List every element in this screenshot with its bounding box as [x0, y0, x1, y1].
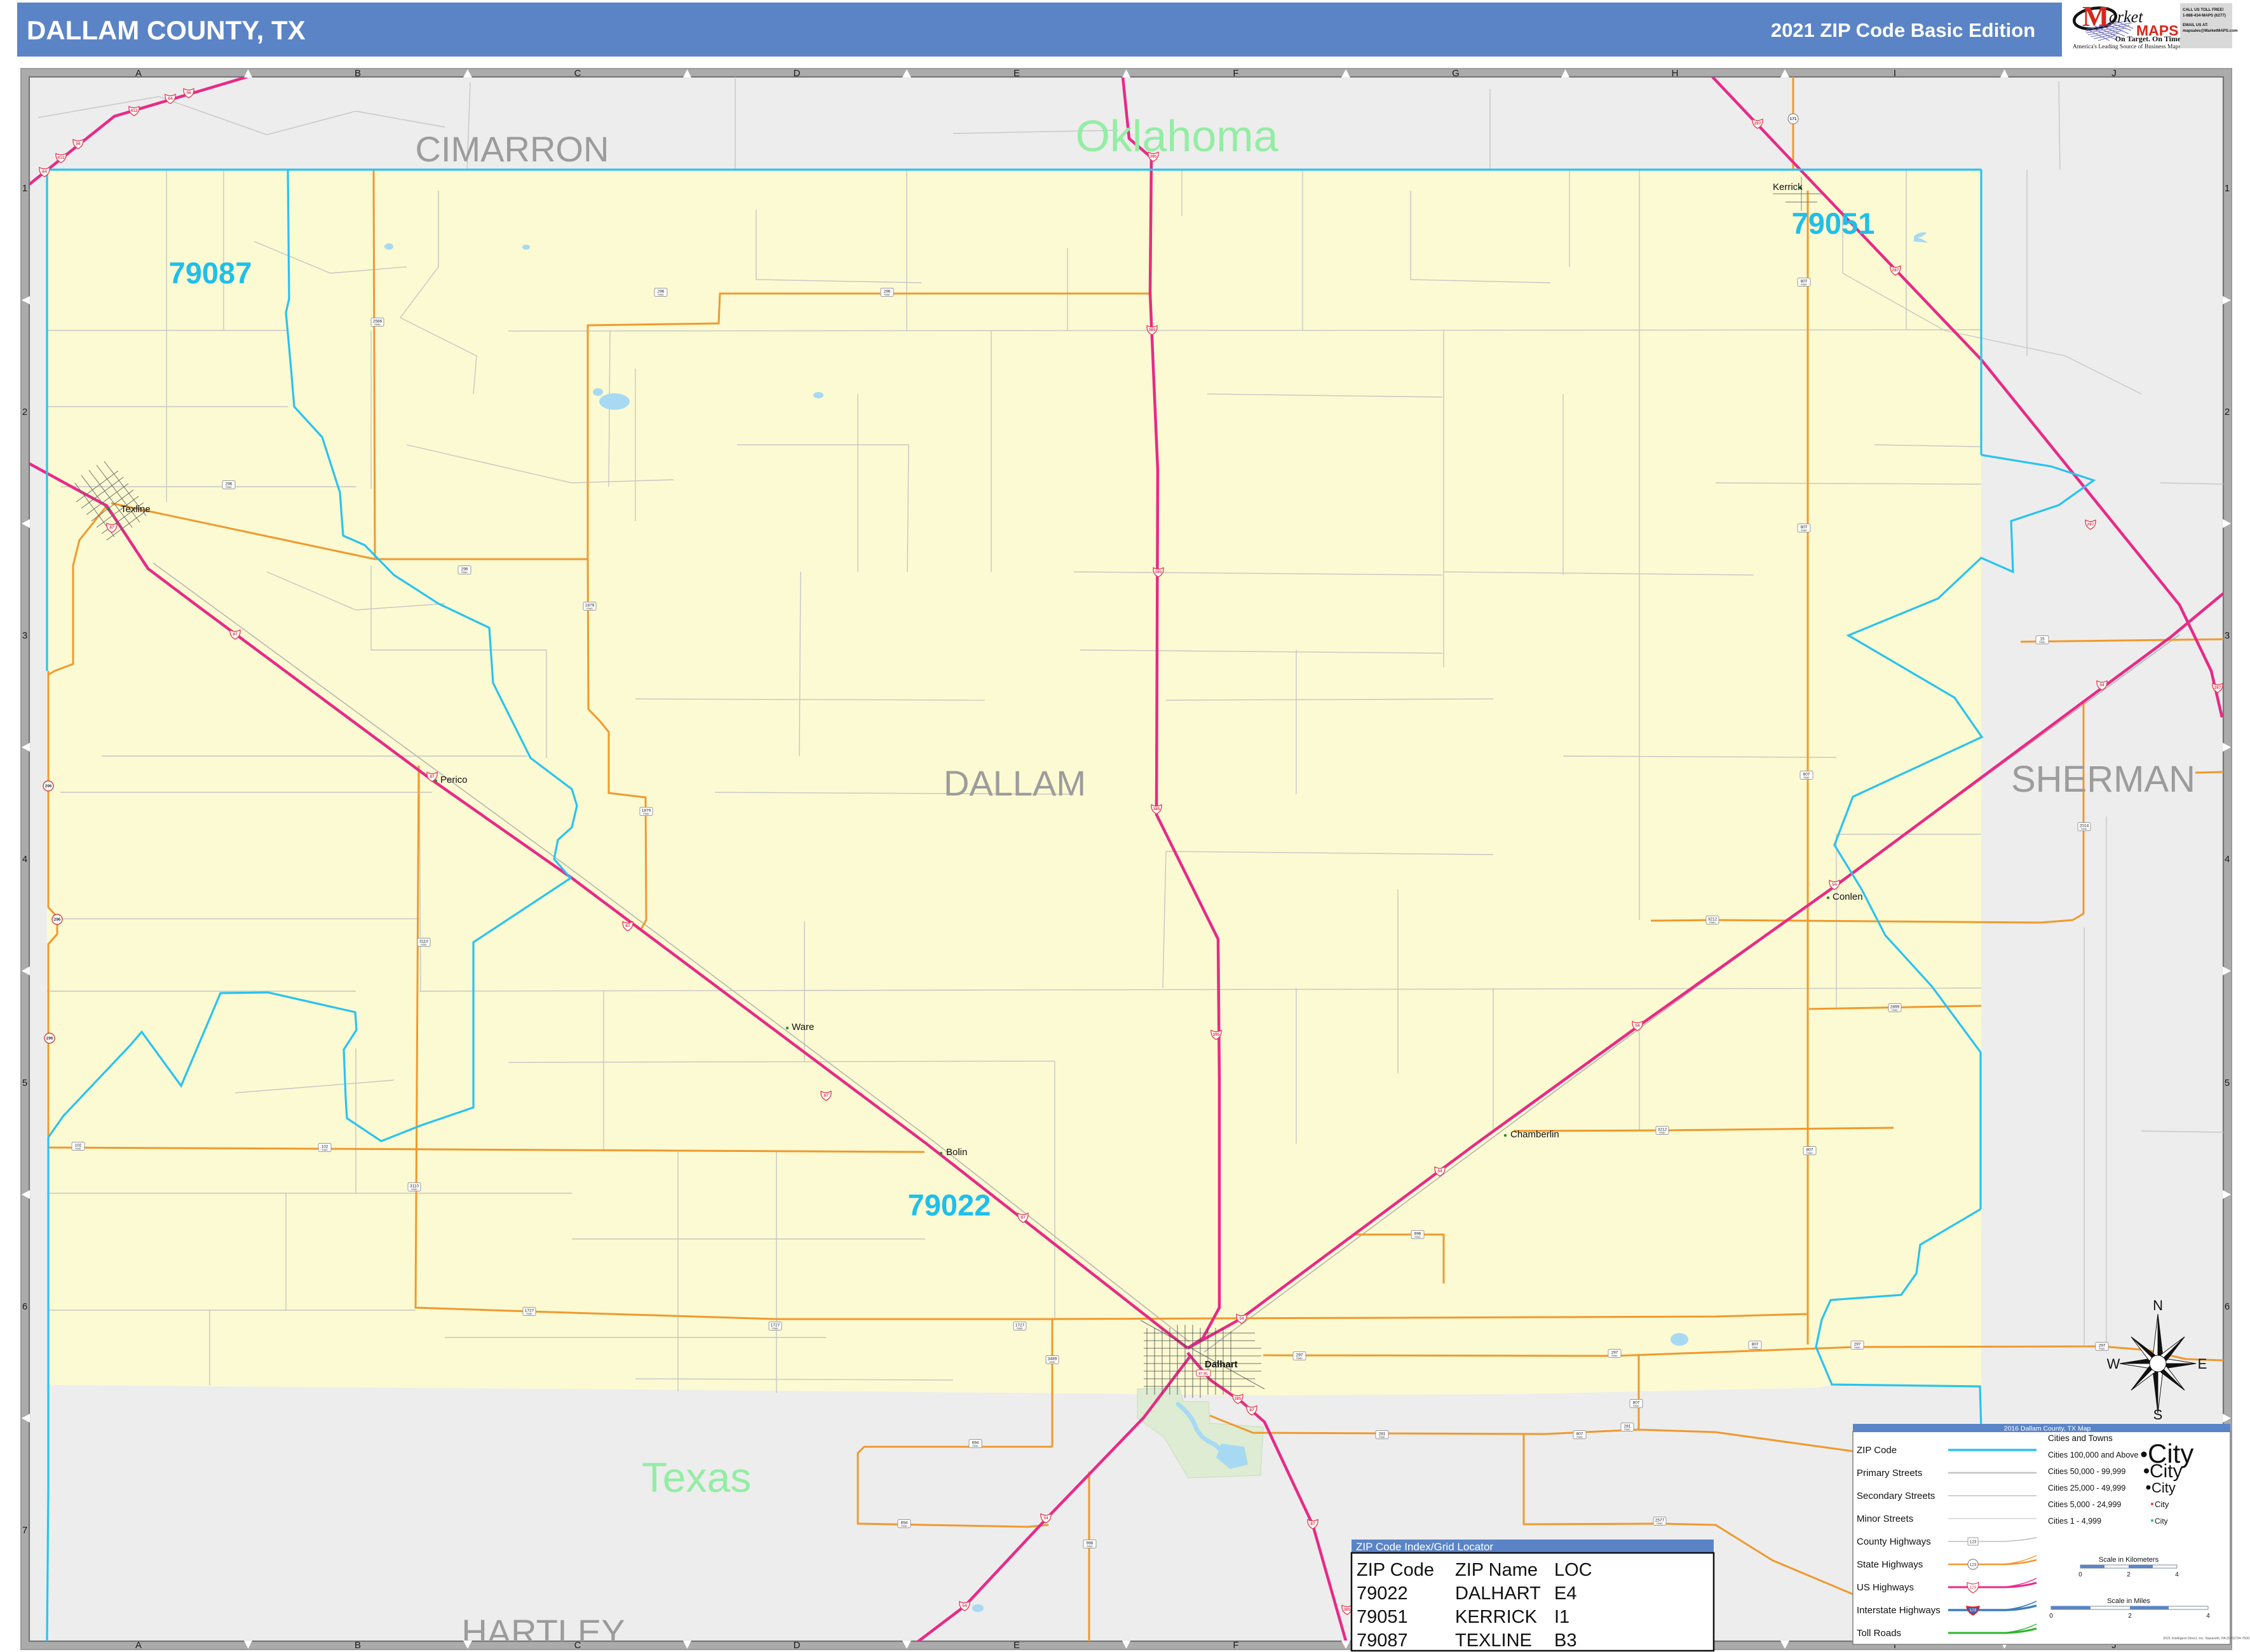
svg-text:ROAD: ROAD — [461, 571, 468, 574]
svg-text:ZIP Code: ZIP Code — [1357, 1560, 1434, 1580]
svg-text:87: 87 — [109, 525, 114, 530]
svg-text:2: 2 — [2128, 1613, 2132, 1620]
svg-text:2021 Intelligent Direct, Inc.: 2021 Intelligent Direct, Inc. Nazareth, … — [2163, 1637, 2249, 1641]
svg-text:54: 54 — [962, 1604, 967, 1608]
svg-text:US Highways: US Highways — [1857, 1582, 1914, 1593]
svg-text:87: 87 — [1310, 1522, 1315, 1526]
svg-text:DALLAM: DALLAM — [944, 763, 1086, 803]
svg-text:C: C — [574, 1640, 581, 1651]
svg-text:5: 5 — [22, 1078, 27, 1088]
svg-text:79087: 79087 — [169, 256, 252, 290]
svg-text:Chamberlin: Chamberlin — [1510, 1129, 1559, 1140]
svg-text:County Highways: County Highways — [1857, 1536, 1931, 1547]
svg-text:296: 296 — [54, 917, 61, 922]
svg-text:287: 287 — [1754, 121, 1761, 126]
svg-text:56: 56 — [76, 142, 81, 146]
svg-text:City: City — [2155, 1517, 2168, 1526]
svg-text:ROAD: ROAD — [1801, 283, 1807, 286]
svg-text:ROAD: ROAD — [972, 1445, 979, 1447]
svg-text:D: D — [794, 1640, 801, 1651]
svg-text:E: E — [1013, 1640, 1020, 1651]
svg-text:ROAD: ROAD — [411, 1188, 417, 1191]
svg-text:ROAD: ROAD — [1049, 1361, 1055, 1364]
svg-text:412: 412 — [57, 156, 65, 160]
svg-text:ROAD: ROAD — [884, 294, 890, 296]
svg-text:DALHART: DALHART — [1455, 1583, 1541, 1604]
svg-text:A: A — [135, 68, 142, 79]
svg-text:385: 385 — [1149, 154, 1157, 159]
svg-text:Bolin: Bolin — [946, 1147, 967, 1158]
svg-text:B: B — [355, 1640, 361, 1651]
svg-text:385: 385 — [1343, 1608, 1351, 1612]
svg-text:City: City — [2150, 1461, 2183, 1482]
svg-text:E4: E4 — [1554, 1583, 1576, 1604]
svg-text:B3: B3 — [1554, 1630, 1576, 1651]
svg-text:C: C — [574, 68, 581, 79]
svg-text:2: 2 — [2225, 407, 2230, 417]
svg-text:7: 7 — [22, 1525, 27, 1536]
svg-text:Scale in Kilometers: Scale in Kilometers — [2099, 1556, 2159, 1564]
svg-text:ROAD: ROAD — [1801, 529, 1807, 532]
svg-text:287: 287 — [2214, 686, 2221, 690]
svg-text:2: 2 — [2127, 1571, 2131, 1578]
svg-text:0: 0 — [2078, 1571, 2082, 1578]
svg-text:ROAD: ROAD — [1854, 1346, 1860, 1349]
svg-text:E: E — [2198, 1356, 2207, 1372]
svg-text:F: F — [1233, 1640, 1238, 1651]
svg-text:123: 123 — [1970, 1540, 1977, 1545]
svg-text:America's Leading Source of B: America's Leading Source of Business Map… — [2073, 43, 2181, 50]
svg-text:DALLAM COUNTY, TX: DALLAM COUNTY, TX — [27, 15, 306, 45]
svg-text:ROAD: ROAD — [1657, 1522, 1663, 1525]
svg-text:Conlen: Conlen — [1833, 891, 1863, 902]
svg-text:296: 296 — [45, 784, 52, 789]
svg-text:4: 4 — [2175, 1571, 2179, 1578]
svg-text:ROAD: ROAD — [643, 813, 649, 815]
svg-text:ROAD: ROAD — [526, 1313, 532, 1315]
svg-text:Cities 25,000 - 49,999: Cities 25,000 - 49,999 — [2048, 1484, 2125, 1493]
svg-text:54: 54 — [1043, 1516, 1048, 1520]
svg-text:2: 2 — [22, 407, 27, 417]
svg-text:385: 385 — [1153, 807, 1160, 811]
svg-text:J: J — [2111, 68, 2117, 79]
svg-text:79022: 79022 — [1357, 1583, 1408, 1604]
svg-text:N: N — [2153, 1297, 2163, 1313]
svg-text:ROAD: ROAD — [75, 1148, 81, 1150]
svg-text:Toll Roads: Toll Roads — [1857, 1628, 1901, 1639]
svg-text:ROAD: ROAD — [1752, 1346, 1758, 1349]
svg-text:Primary Streets: Primary Streets — [1857, 1468, 1922, 1479]
svg-text:SHERMAN: SHERMAN — [2011, 759, 2195, 800]
svg-text:ROAD: ROAD — [772, 1327, 778, 1330]
svg-text:54: 54 — [1635, 1024, 1640, 1028]
svg-text:ROAD: ROAD — [1414, 1236, 1421, 1238]
svg-text:mapsales@MarketMAPS.com: mapsales@MarketMAPS.com — [2183, 29, 2238, 33]
svg-text:Cities 5,000 - 24,999: Cities 5,000 - 24,999 — [2048, 1500, 2121, 1509]
svg-text:Interstate Highways: Interstate Highways — [1857, 1605, 1941, 1616]
svg-text:Texas: Texas — [642, 1454, 751, 1501]
svg-text:City: City — [2155, 1500, 2169, 1509]
svg-text:1-888-434-MAPS (6277): 1-888-434-MAPS (6277) — [2183, 13, 2226, 18]
svg-text:B: B — [355, 68, 361, 79]
svg-text:W: W — [2107, 1356, 2120, 1372]
svg-text:ROAD: ROAD — [1379, 1436, 1385, 1439]
svg-text:Cities 100,000 and Above: Cities 100,000 and Above — [2048, 1451, 2139, 1459]
svg-text:D: D — [794, 68, 801, 79]
svg-text:287: 287 — [2087, 522, 2094, 527]
svg-text:1: 1 — [2225, 183, 2230, 194]
svg-text:I: I — [1894, 68, 1896, 79]
svg-text:ROAD: ROAD — [901, 1525, 907, 1527]
svg-text:ROAD: ROAD — [1806, 1152, 1813, 1154]
svg-text:Oklahoma: Oklahoma — [1075, 111, 1278, 161]
svg-text:E: E — [1013, 68, 1020, 79]
svg-text:Cities 50,000 - 99,999: Cities 50,000 - 99,999 — [2048, 1467, 2125, 1476]
svg-text:5: 5 — [2225, 1078, 2230, 1088]
svg-text:ROAD: ROAD — [374, 323, 381, 326]
svg-text:6: 6 — [2225, 1301, 2230, 1312]
svg-text:412: 412 — [130, 109, 138, 113]
svg-text:State Highways: State Highways — [1857, 1559, 1923, 1570]
svg-text:ROAD: ROAD — [1709, 921, 1716, 924]
svg-text:56: 56 — [186, 91, 191, 95]
svg-text:2021 ZIP Code Basic Edition: 2021 ZIP Code Basic Edition — [1771, 19, 2035, 41]
svg-text:87: 87 — [430, 775, 435, 779]
svg-text:ROAD: ROAD — [1659, 1132, 1665, 1134]
svg-text:Scale in Miles: Scale in Miles — [2107, 1597, 2150, 1605]
svg-text:171: 171 — [1790, 117, 1797, 121]
svg-text:54: 54 — [1832, 883, 1837, 887]
svg-text:ROAD: ROAD — [226, 486, 232, 489]
svg-text:CALL US TOLL FREE!: CALL US TOLL FREE! — [2183, 8, 2224, 12]
svg-text:ROAD: ROAD — [586, 607, 593, 610]
svg-text:ROAD: ROAD — [1611, 1355, 1618, 1357]
svg-text:ROAD: ROAD — [1087, 1545, 1093, 1548]
svg-text:A: A — [135, 1640, 142, 1651]
svg-text:ROAD: ROAD — [1296, 1357, 1303, 1360]
svg-text:On Target. On Time.: On Target. On Time. — [2115, 34, 2183, 43]
svg-text:EMAIL US AT:: EMAIL US AT: — [2183, 23, 2208, 27]
svg-text:79022: 79022 — [908, 1188, 991, 1222]
svg-text:I1: I1 — [1554, 1607, 1569, 1627]
svg-text:H: H — [1672, 68, 1679, 79]
svg-text:4: 4 — [22, 854, 27, 865]
svg-text:City: City — [2152, 1480, 2176, 1496]
svg-text:54: 54 — [1437, 1169, 1442, 1174]
svg-text:ROAD: ROAD — [2099, 1348, 2105, 1350]
svg-text:TEXLINE: TEXLINE — [1455, 1630, 1532, 1651]
svg-text:4: 4 — [2225, 854, 2230, 865]
svg-text:KERRICK: KERRICK — [1455, 1607, 1538, 1627]
svg-text:G: G — [1452, 68, 1460, 79]
svg-text:4: 4 — [2206, 1613, 2210, 1620]
svg-text:54: 54 — [2099, 683, 2104, 687]
svg-text:287: 287 — [1892, 268, 1899, 273]
svg-text:ROAD: ROAD — [1633, 1405, 1639, 1407]
svg-text:ROAD: ROAD — [1803, 776, 1810, 779]
svg-text:54: 54 — [1239, 1317, 1244, 1321]
svg-text:F: F — [1233, 68, 1238, 79]
svg-text:87: 87 — [823, 1093, 829, 1098]
svg-text:123: 123 — [1970, 1563, 1977, 1567]
svg-text:296: 296 — [46, 1036, 53, 1041]
svg-text:M: M — [2082, 1, 2109, 32]
svg-text:6: 6 — [22, 1301, 27, 1312]
svg-text:ZIP Code: ZIP Code — [1857, 1445, 1897, 1456]
svg-text:2016 Dallam County, TX Map: 2016 Dallam County, TX Map — [2004, 1425, 2091, 1433]
svg-text:87-BL: 87-BL — [1198, 1372, 1209, 1376]
svg-text:Perico: Perico — [440, 775, 468, 785]
svg-text:87: 87 — [233, 632, 238, 637]
svg-text:385: 385 — [1148, 328, 1156, 332]
svg-text:ZIP Name: ZIP Name — [1455, 1560, 1538, 1580]
svg-text:79051: 79051 — [1357, 1607, 1408, 1627]
svg-text:Kerrick: Kerrick — [1773, 182, 1803, 193]
svg-text:87: 87 — [1249, 1408, 1254, 1412]
svg-text:Texline: Texline — [121, 504, 151, 515]
svg-text:Dalhart: Dalhart — [1205, 1359, 1238, 1370]
svg-text:ROAD: ROAD — [2081, 828, 2087, 830]
svg-text:64: 64 — [42, 170, 47, 174]
svg-text:1: 1 — [22, 183, 27, 194]
svg-text:0: 0 — [2049, 1613, 2053, 1620]
svg-text:ROAD: ROAD — [1624, 1428, 1630, 1431]
svg-text:87: 87 — [1020, 1215, 1026, 1220]
svg-text:ROAD: ROAD — [658, 294, 664, 296]
svg-text:385: 385 — [1234, 1397, 1242, 1401]
svg-text:3: 3 — [22, 630, 27, 641]
svg-text:385: 385 — [1155, 570, 1162, 574]
svg-text:Cities and Towns: Cities and Towns — [2048, 1433, 2113, 1443]
svg-text:Ware: Ware — [792, 1022, 814, 1032]
svg-text:S: S — [2153, 1407, 2163, 1423]
svg-text:64: 64 — [168, 97, 173, 101]
svg-text:87: 87 — [625, 924, 630, 928]
svg-text:LOC: LOC — [1554, 1560, 1592, 1580]
svg-text:ROAD: ROAD — [1017, 1327, 1023, 1330]
svg-text:Secondary Streets: Secondary Streets — [1857, 1491, 1935, 1501]
svg-text:79051: 79051 — [1792, 207, 1875, 240]
svg-text:Cities 1 - 4,999: Cities 1 - 4,999 — [2048, 1517, 2101, 1526]
svg-text:ROAD: ROAD — [421, 944, 427, 946]
svg-text:123: 123 — [1970, 1608, 1977, 1613]
svg-text:CIMARRON: CIMARRON — [416, 129, 609, 169]
svg-text:123: 123 — [1970, 1586, 1977, 1590]
svg-text:79087: 79087 — [1357, 1630, 1408, 1651]
svg-text:385: 385 — [1212, 1032, 1220, 1037]
svg-text:ROAD: ROAD — [322, 1149, 328, 1151]
svg-text:Minor Streets: Minor Streets — [1857, 1513, 1913, 1524]
svg-text:ZIP Code Index/Grid Locator: ZIP Code Index/Grid Locator — [1356, 1541, 1493, 1553]
svg-text:ROAD: ROAD — [1576, 1436, 1583, 1439]
svg-text:ROAD: ROAD — [2039, 641, 2045, 644]
svg-text:3: 3 — [2225, 630, 2230, 641]
svg-text:ROAD: ROAD — [1892, 1009, 1898, 1012]
